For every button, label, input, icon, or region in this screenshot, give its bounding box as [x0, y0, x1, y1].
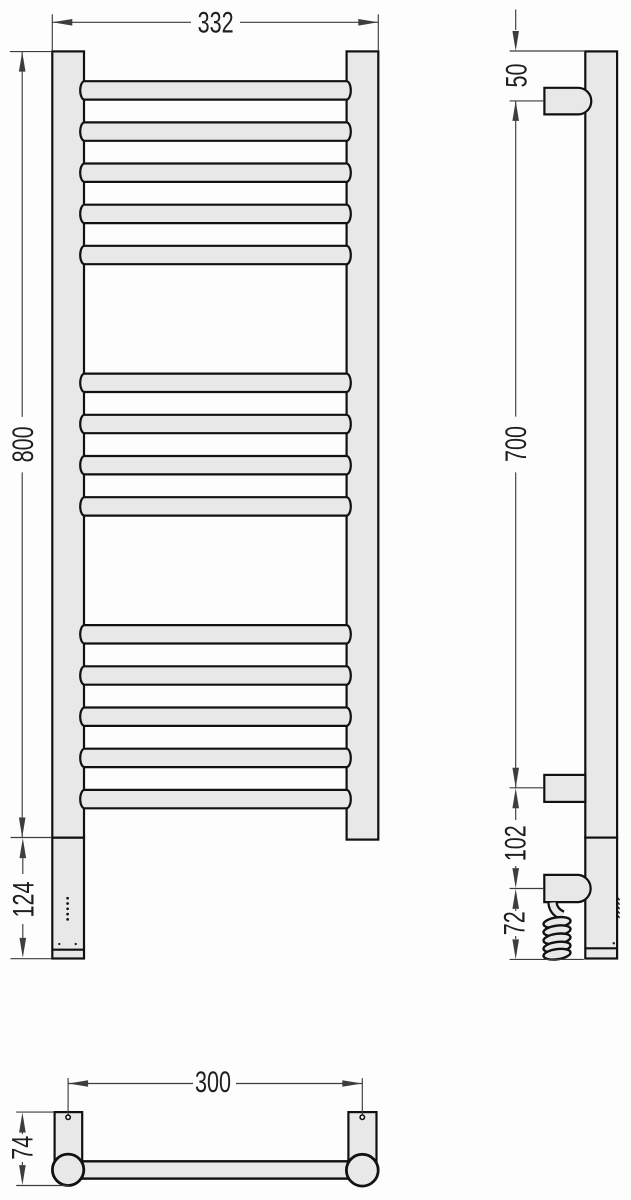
svg-text:800: 800: [5, 426, 39, 462]
svg-text:74: 74: [5, 1136, 39, 1160]
svg-text:300: 300: [195, 1064, 231, 1098]
svg-text:72: 72: [497, 911, 531, 935]
svg-text:50: 50: [499, 63, 533, 87]
svg-text:124: 124: [6, 881, 40, 917]
svg-text:332: 332: [198, 5, 234, 39]
svg-text:700: 700: [498, 426, 532, 462]
svg-text:102: 102: [498, 825, 532, 861]
